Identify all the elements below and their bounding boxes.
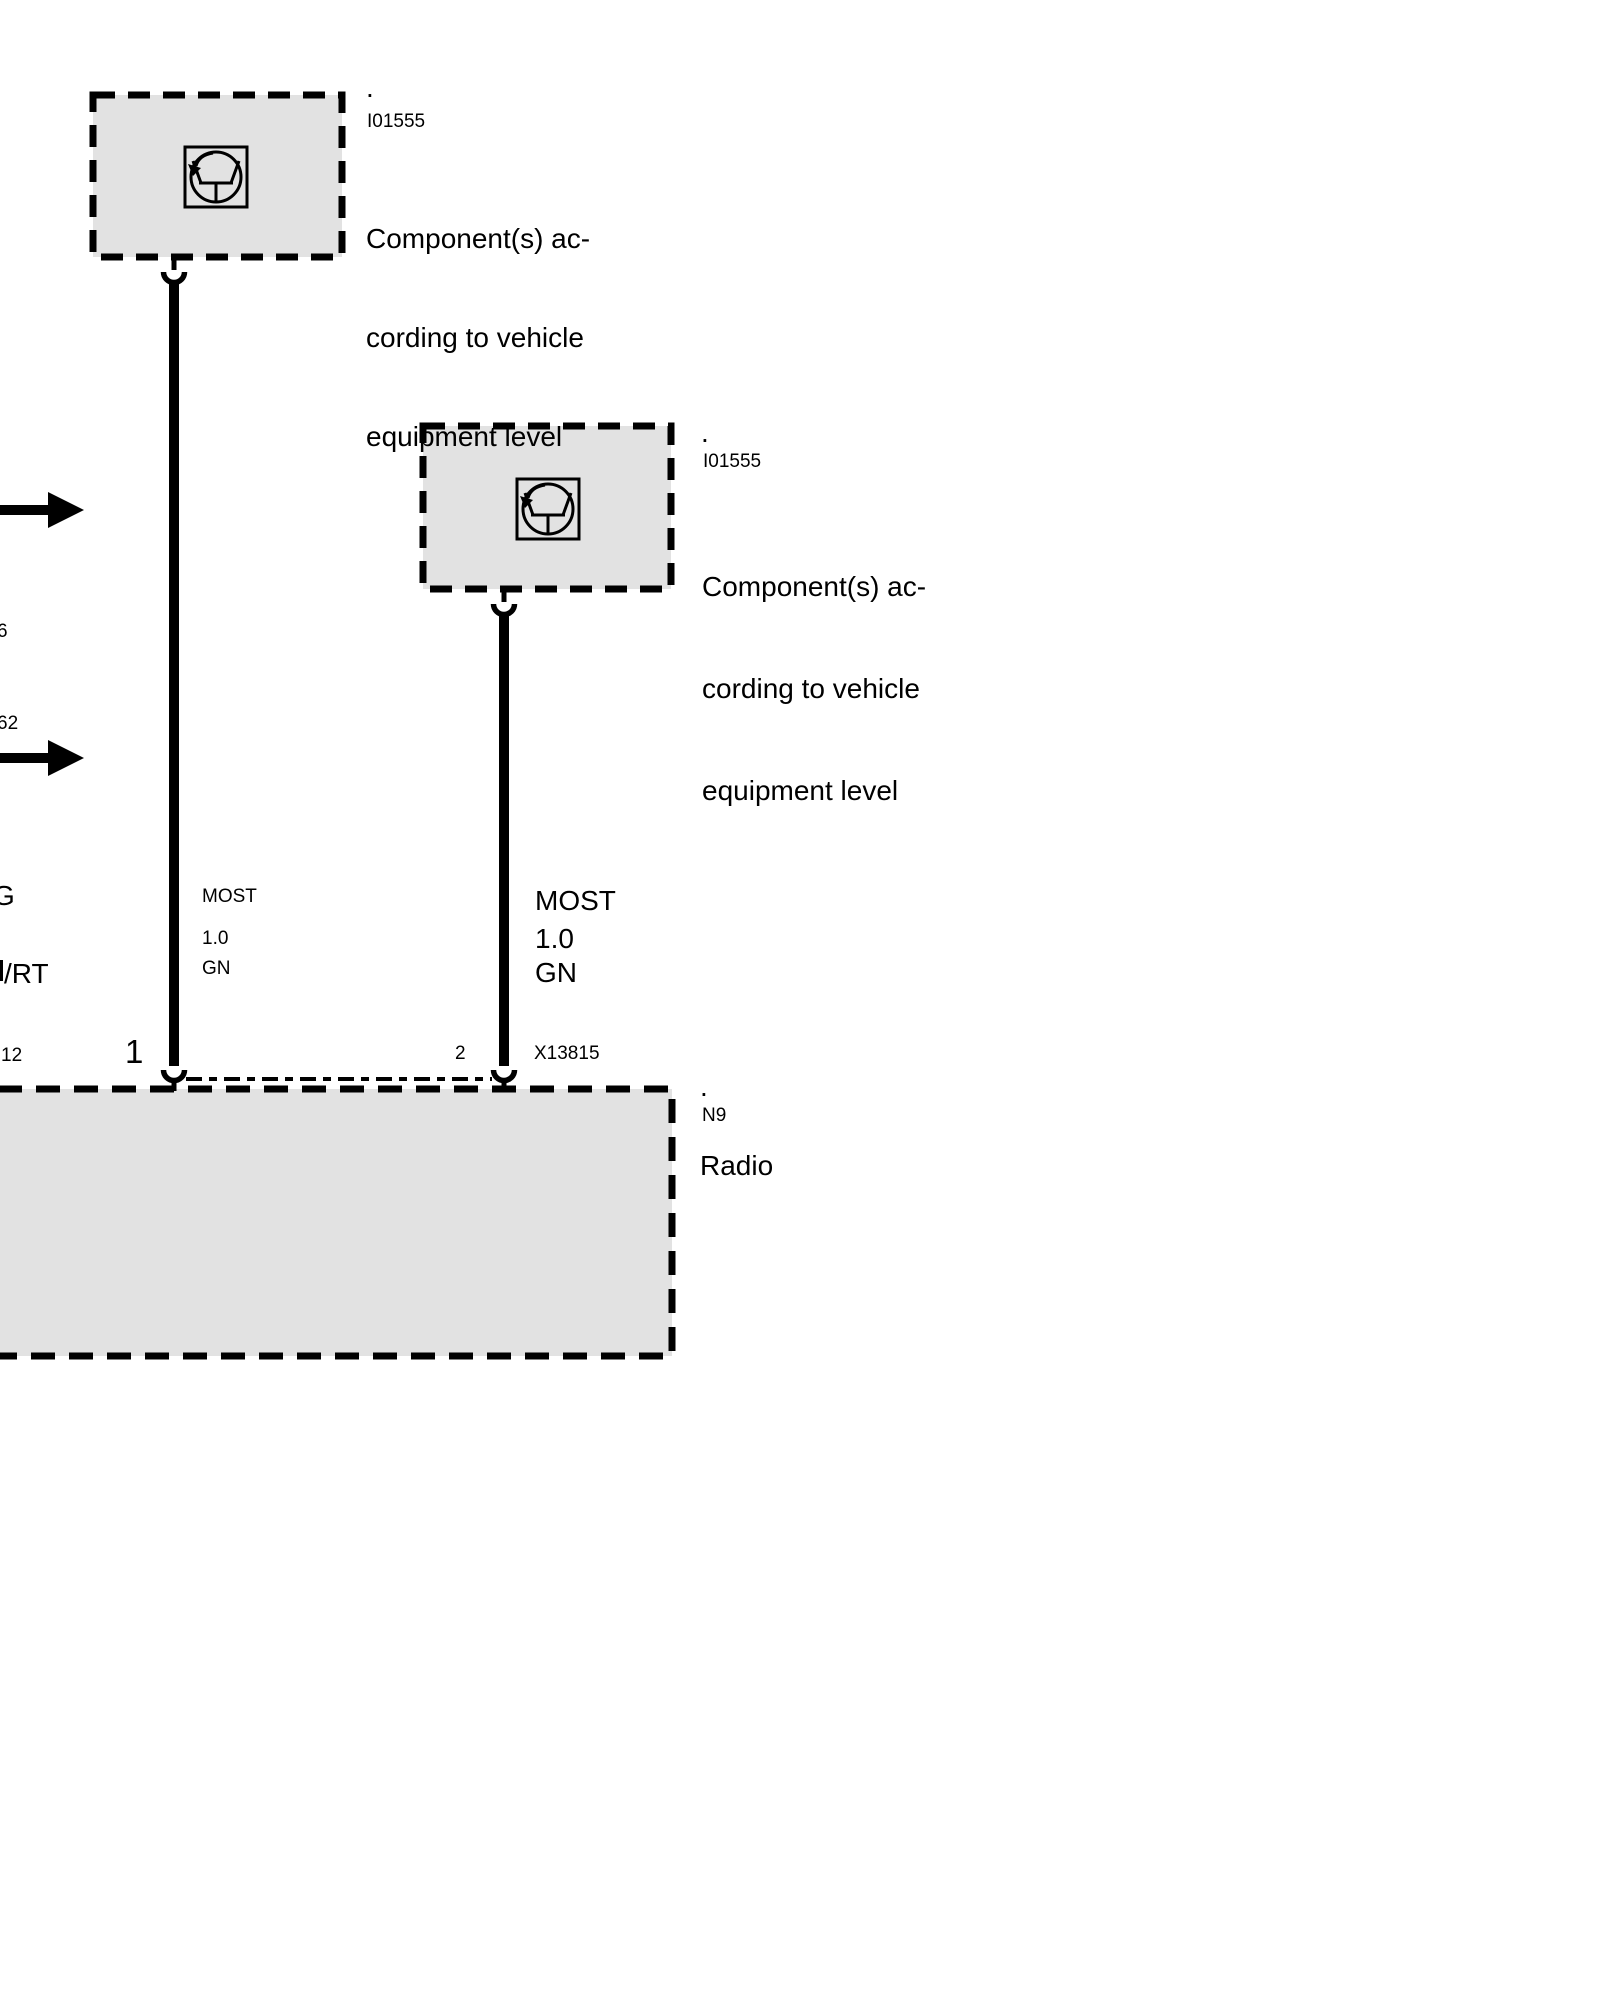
- connector-code: X13815: [534, 1044, 600, 1063]
- clipped-letter-fragment: [0, 960, 3, 981]
- wiring-graphics: [0, 0, 1600, 2000]
- right-arrow-icon: [48, 492, 84, 528]
- wire1-bus-label: MOST: [202, 887, 257, 906]
- edge-wire-name-fragment: G: [0, 882, 15, 910]
- wire1-group: [163, 256, 184, 1091]
- wire2-pin-number: 2: [455, 1044, 466, 1063]
- wire2-color-label: GN: [535, 959, 577, 987]
- wire2-group: [494, 588, 515, 1091]
- edge-fragment-62: 62: [0, 714, 18, 733]
- wire2-size-label: 1.0: [535, 925, 574, 953]
- wire1-pin-number: 1: [125, 1035, 143, 1068]
- edge-wire-color-fragment: /RT: [4, 960, 49, 988]
- component-description: Component(s) ac- cording to vehicle equi…: [366, 156, 590, 486]
- edge-fragment-6: 6: [0, 622, 8, 641]
- description-line: equipment level: [702, 774, 926, 808]
- radio-name: Radio: [700, 1152, 773, 1180]
- component-code: I01555: [367, 112, 425, 131]
- description-line: Component(s) ac-: [366, 222, 590, 255]
- radio-code: N9: [702, 1106, 726, 1125]
- female-connector-cup: [494, 1070, 515, 1081]
- wiring-diagram-page: { "colors": { "background": "#ffffff", "…: [0, 0, 1600, 2000]
- label-dot: .: [701, 419, 709, 447]
- description-line: cording to vehicle: [702, 672, 926, 706]
- radio-box: [0, 1089, 672, 1356]
- component-description: Component(s) ac- cording to vehicle equi…: [702, 502, 926, 842]
- label-dot: .: [366, 74, 374, 102]
- description-line: cording to vehicle: [366, 321, 590, 354]
- description-line: equipment level: [366, 420, 590, 453]
- component-box-top: [93, 95, 342, 257]
- female-connector-cup: [163, 1070, 184, 1081]
- wire2-bus-label: MOST: [535, 887, 616, 915]
- edge-pin-fragment: 12: [1, 1046, 22, 1065]
- component-code: I01555: [703, 452, 761, 471]
- label-dot: .: [700, 1073, 708, 1101]
- description-line: Component(s) ac-: [702, 570, 926, 604]
- right-arrow-icon: [48, 740, 84, 776]
- wire1-size-label: 1.0: [202, 929, 228, 948]
- wire1-color-label: GN: [202, 959, 231, 978]
